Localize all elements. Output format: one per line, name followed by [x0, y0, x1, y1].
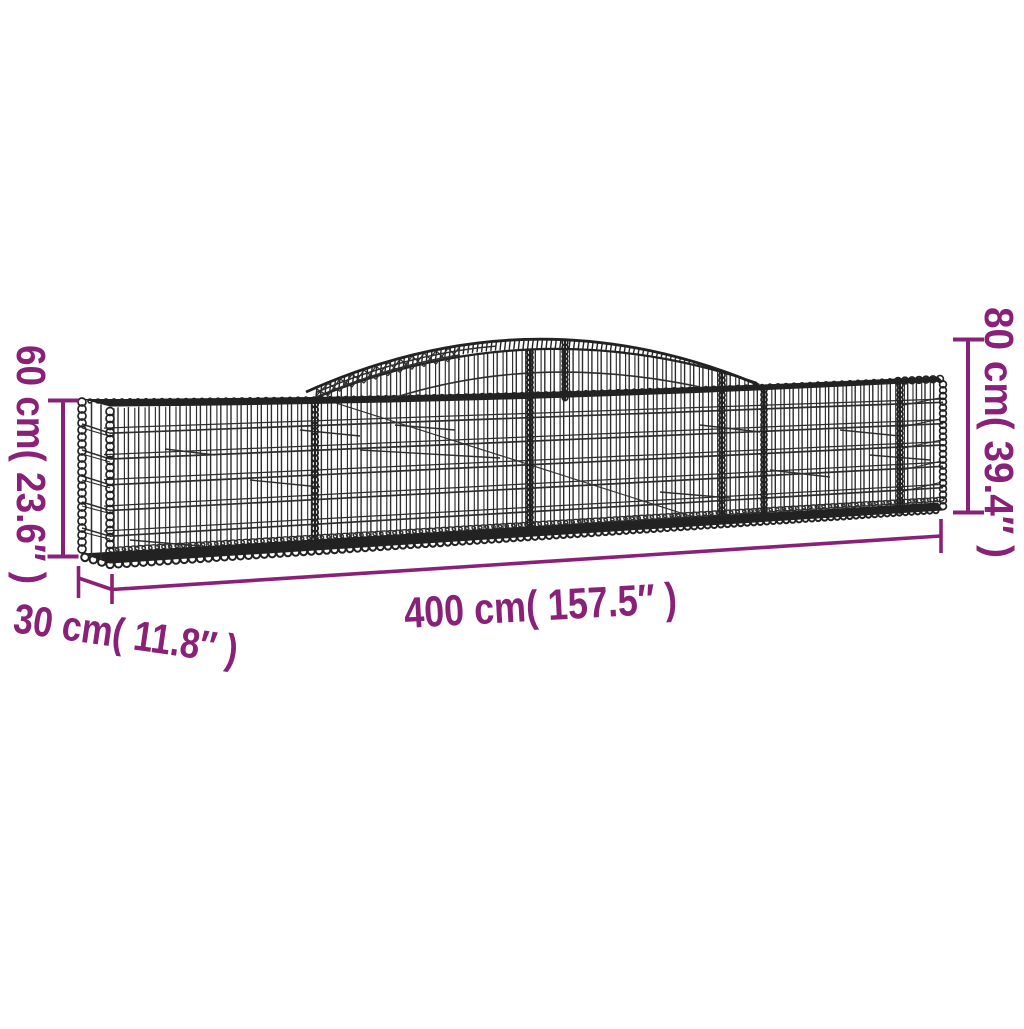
svg-text:80 cm( 39.4″ ): 80 cm( 39.4″ ) — [976, 307, 1022, 558]
svg-text:30 cm( 11.8″ ): 30 cm( 11.8″ ) — [11, 594, 241, 673]
svg-text:400 cm( 157.5″ ): 400 cm( 157.5″ ) — [403, 575, 678, 638]
svg-text:60 cm( 23.6″ ): 60 cm( 23.6″ ) — [8, 345, 54, 584]
